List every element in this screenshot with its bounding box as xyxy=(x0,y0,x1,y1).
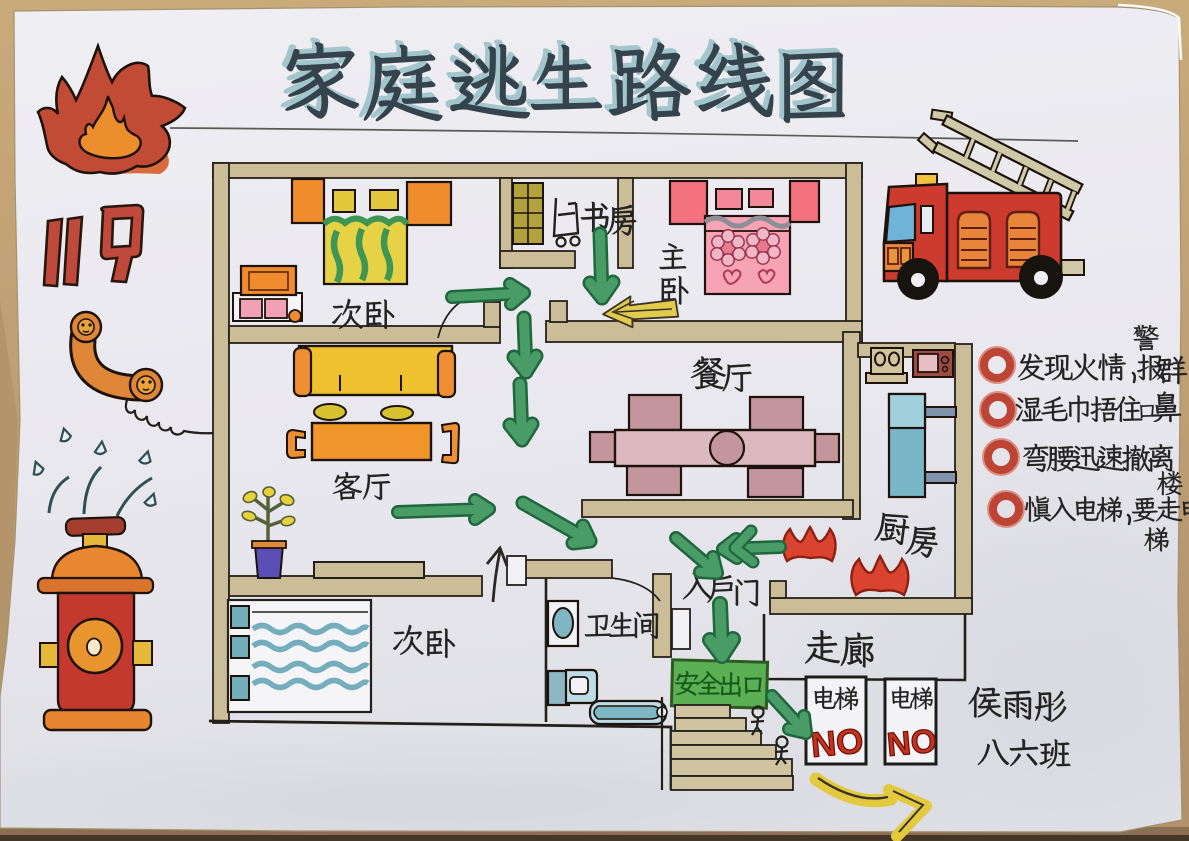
svg-text:NO: NO xyxy=(885,722,938,763)
svg-text:NO: NO xyxy=(809,722,865,765)
